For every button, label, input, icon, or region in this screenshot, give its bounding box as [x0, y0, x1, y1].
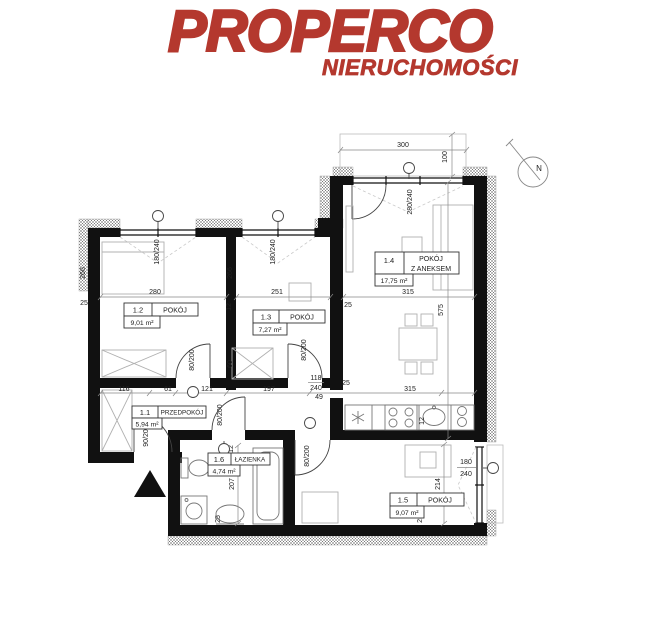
- dim-opening-wall: 25: [342, 380, 350, 387]
- dim-depth-12: 266: [80, 267, 87, 279]
- room-label-14: 1.4 POKÓJ Z ANEKSEM 17,75 m²: [375, 252, 459, 286]
- door-balcony-14: [352, 185, 386, 219]
- room-area: 7,27 m²: [258, 327, 282, 334]
- dim-wall-13-14: 25: [344, 302, 352, 309]
- room-name: ŁAZIENKA: [235, 457, 266, 464]
- door-marker-icon: [188, 387, 199, 398]
- wardrobe-room-12: [102, 350, 166, 377]
- cabinet-room-15: [302, 492, 338, 523]
- dim-width-12: 280: [149, 289, 161, 296]
- window-marker-icon: [153, 211, 164, 230]
- room-id: 1.4: [384, 256, 394, 265]
- dim-window-14: 280/240: [407, 189, 414, 214]
- dim-wall-12-13: 12: [226, 303, 233, 311]
- room-id: 1.2: [133, 306, 143, 315]
- window-room-15: [475, 447, 484, 523]
- dim-balcony-width: 300: [397, 142, 409, 149]
- wardrobe-room-13: [232, 348, 273, 379]
- dim-hall-5: 315: [404, 386, 416, 393]
- dim-depth-13: 266: [227, 267, 234, 279]
- dim-door-13: 80/200: [301, 339, 308, 361]
- room-id: 1.6: [214, 455, 224, 464]
- desk-room-13: [289, 283, 311, 301]
- room-name: POKÓJ: [290, 313, 314, 322]
- washer-icon: [181, 496, 207, 524]
- room-name: POKÓJ: [163, 306, 187, 315]
- dim-window-12: 180/240: [154, 239, 161, 264]
- room-label-16: 1.6 ŁAZIENKA 4,74 m²: [208, 453, 270, 476]
- room-name-line1: POKÓJ: [419, 254, 443, 263]
- room-area: 5,94 m²: [135, 422, 159, 429]
- window-marker-icon: [483, 463, 499, 474]
- dim-wall-16b: 25: [215, 515, 222, 523]
- stove-icon: [385, 405, 417, 430]
- dim-hall-1: 116: [118, 386, 129, 393]
- room-area: 9,01 m²: [130, 320, 154, 327]
- dim-hall-3: 121: [201, 386, 213, 393]
- door-marker-icon: [219, 441, 230, 455]
- dim-depth-14: 575: [438, 304, 445, 316]
- dim-width-14: 315: [402, 289, 414, 296]
- room-id: 1.1: [140, 408, 150, 417]
- door-room-15: [295, 440, 330, 475]
- room-id: 1.3: [261, 313, 271, 322]
- room-name: POKÓJ: [428, 496, 452, 505]
- dim-opening-height: 240: [310, 385, 322, 392]
- room-label-12: 1.2 POKÓJ 9,01 m²: [124, 303, 198, 328]
- room-id: 1.5: [398, 496, 408, 505]
- dim-hall-2: 61: [164, 386, 172, 393]
- toilet-icon: [181, 458, 209, 478]
- dim-window-13: 180/240: [270, 239, 277, 264]
- window-marker-icon: [273, 211, 284, 230]
- dim-opening-offset: 49: [315, 394, 323, 401]
- dim-depth-15: 214: [435, 478, 442, 490]
- kitchen-sink-icon: [419, 405, 467, 430]
- dim-wall-kitchen: 12: [419, 417, 426, 425]
- dim-opening-width: 118: [310, 375, 321, 382]
- dim-hall-4: 197: [263, 386, 275, 393]
- fridge-snowflake-icon: [352, 411, 364, 424]
- window-marker-icon: [404, 163, 415, 180]
- window-room-13: [242, 228, 315, 237]
- window-room-12: [120, 228, 196, 237]
- door-marker-icon: [305, 418, 316, 430]
- compass-icon: N: [506, 139, 548, 187]
- floorplan-drawing: 300 280 251 315 116 61 121 197 315 118 2…: [0, 0, 654, 631]
- room-label-11: 1.1 PRZEDPOKÓJ 5,94 m²: [132, 406, 206, 429]
- dim-door-15: 80/200: [304, 445, 311, 467]
- dim-seg-60: 60: [227, 360, 234, 368]
- dim-window-15-w: 180: [460, 459, 472, 466]
- entrance-arrow-icon: [134, 470, 166, 497]
- dim-balcony-depth: 100: [442, 151, 449, 163]
- room-label-13: 1.3 POKÓJ 7,27 m²: [253, 310, 325, 335]
- room-label-15: 1.5 POKÓJ 9,07 m²: [390, 493, 464, 518]
- room-area: 17,75 m²: [381, 278, 409, 285]
- room-name: PRZEDPOKÓJ: [161, 408, 204, 417]
- kitchen-annex: [345, 405, 474, 430]
- dimension-texts-rotated: 100 280/240 180/240 180/240 266 266 575 …: [80, 151, 449, 523]
- sofa-room-14: [433, 205, 473, 290]
- dim-door-12: 80/200: [189, 349, 196, 371]
- dim-wall-left: 25: [80, 300, 88, 307]
- dining-table-room-14: [399, 314, 437, 374]
- dim-door-16: 80/200: [217, 404, 224, 426]
- wardrobe-hall: [102, 390, 132, 451]
- dim-width-13: 251: [271, 289, 283, 296]
- dim-depth-16: 207: [229, 478, 236, 490]
- room-name-line2: Z ANEKSEM: [411, 266, 451, 273]
- dim-window-15-h: 240: [460, 471, 472, 478]
- room-area: 4,74 m²: [212, 469, 236, 476]
- compass-north-label: N: [536, 164, 542, 173]
- room-area: 9,07 m²: [395, 510, 419, 517]
